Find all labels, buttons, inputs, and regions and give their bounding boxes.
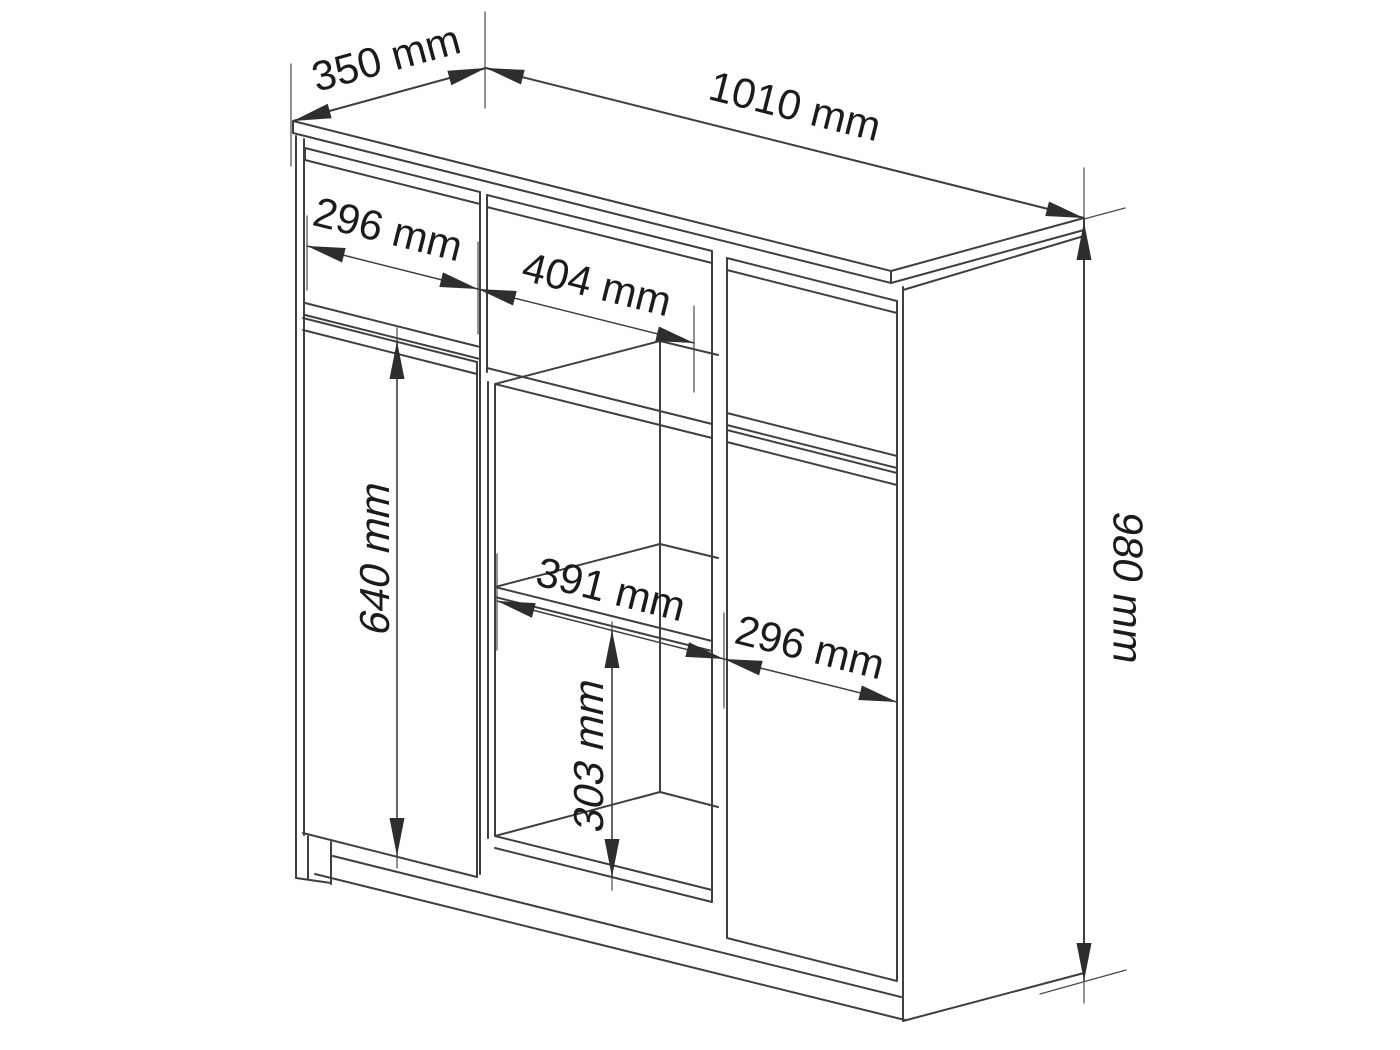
dimension-label: 1010 mm	[704, 62, 885, 150]
dimension-label: 296 mm	[731, 606, 890, 689]
dim-total-height: 980 mm	[1077, 219, 1152, 981]
dimension-label: 303 mm	[565, 673, 612, 836]
cabinet-dimension-diagram: 350 mm 1010 mm 296 mm 404 mm 640 mm	[0, 0, 1400, 1050]
dimension-annotations: 350 mm 1010 mm 296 mm 404 mm 640 mm	[291, 12, 1151, 1003]
technical-drawing-canvas: 350 mm 1010 mm 296 mm 404 mm 640 mm	[0, 0, 1400, 1050]
dimension-label: 350 mm	[307, 15, 466, 100]
base-plinth	[315, 856, 905, 1020]
side-panel-right	[903, 236, 1084, 1021]
dim-left-drawer-width: 296 mm	[307, 188, 478, 289]
dimension-label: 640 mm	[351, 476, 398, 639]
dimension-label: 391 mm	[532, 548, 691, 631]
dim-left-door-height: 640 mm	[351, 341, 404, 856]
dim-lower-compartment-height: 303 mm	[565, 630, 619, 877]
extension-lines	[291, 12, 1126, 1003]
dim-middle-drawer-width: 404 mm	[478, 243, 694, 343]
dim-right-door-width: 296 mm	[724, 606, 897, 702]
dimension-label: 404 mm	[518, 243, 677, 326]
dim-depth: 350 mm	[293, 15, 486, 121]
gap-left-column	[480, 195, 487, 874]
dimension-label: 980 mm	[1105, 508, 1152, 668]
